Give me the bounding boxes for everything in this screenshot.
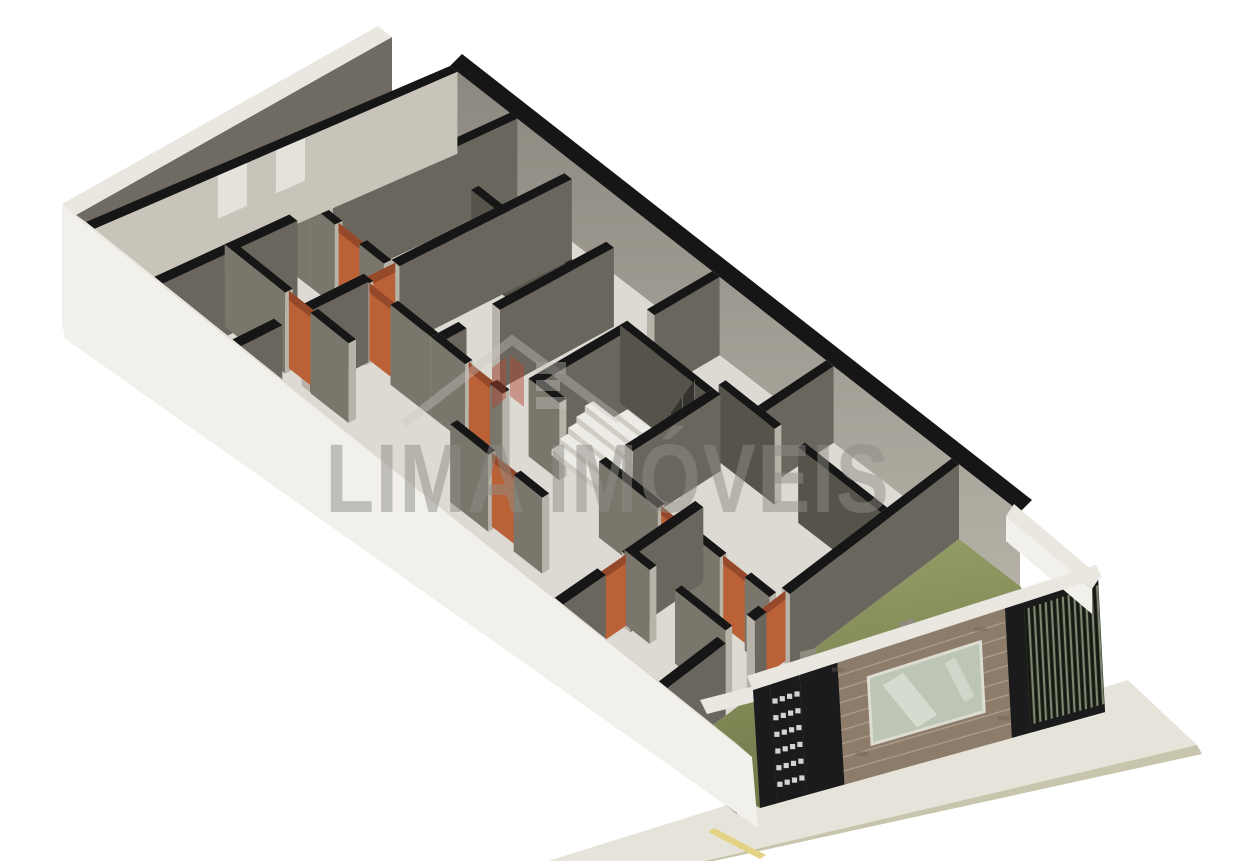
cobogo-hole [785, 780, 790, 785]
logo-glyph-bar [536, 362, 566, 374]
cobogo-hole [797, 742, 802, 747]
wall-end-cap [650, 565, 657, 644]
cobogo-hole [792, 778, 797, 783]
brick-unit [832, 668, 844, 672]
cobogo-hole [784, 763, 789, 768]
brick-unit [975, 627, 987, 631]
wall-end-cap [349, 339, 356, 423]
cobogo-hole [790, 744, 795, 749]
cobogo-hole [798, 759, 803, 764]
floor-plan-render: LIMA IMÓVEIS [0, 0, 1233, 861]
facade-black-panel [800, 662, 845, 795]
cobogo-hole [787, 694, 792, 699]
wall-end-cap [726, 626, 733, 703]
cobogo-hole [795, 708, 800, 713]
cobogo-hole [796, 725, 801, 730]
cobogo-hole [799, 775, 804, 780]
cobogo-hole [788, 711, 793, 716]
cobogo-hole [780, 696, 785, 701]
cobogo-hole [783, 746, 788, 751]
logo-glyph-bar [536, 380, 560, 391]
cobogo-hole [772, 698, 777, 703]
brick-unit [998, 716, 1010, 720]
cobogo-hole [777, 782, 782, 787]
cobogo-hole [789, 727, 794, 732]
watermark-text: LIMA IMÓVEIS [326, 424, 891, 533]
cobogo-hole [791, 761, 796, 766]
cobogo-hole [781, 713, 786, 718]
logo-glyph-bar [536, 397, 566, 409]
cobogo-hole [774, 732, 779, 737]
isometric-floor-plan-svg: LIMA IMÓVEIS [0, 0, 1233, 861]
cobogo-hole [773, 715, 778, 720]
brick-unit [856, 752, 868, 756]
cobogo-hole [794, 691, 799, 696]
cobogo-hole [775, 748, 780, 753]
cobogo-hole [776, 765, 781, 770]
cobogo-hole [782, 730, 787, 735]
